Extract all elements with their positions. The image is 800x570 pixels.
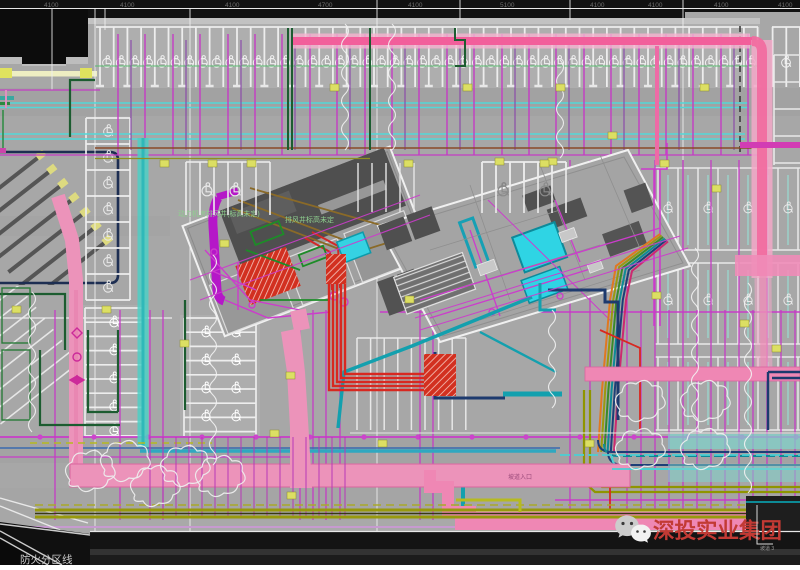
svg-text:坡道 3: 坡道 3 (760, 545, 774, 552)
svg-text:排风井标高未定: 排风井标高未定 (285, 215, 334, 224)
svg-text:坡道入口: 坡道入口 (508, 473, 532, 481)
svg-text:4100: 4100 (408, 2, 423, 9)
svg-text:4100: 4100 (778, 2, 793, 9)
svg-text:4100: 4100 (44, 2, 59, 9)
svg-text:4100: 4100 (120, 2, 135, 9)
svg-text:4100: 4100 (225, 2, 240, 9)
svg-text:动力机房排风井(标高未定): 动力机房排风井(标高未定) (178, 209, 260, 218)
svg-text:4100: 4100 (714, 2, 729, 9)
svg-text:5100: 5100 (500, 2, 515, 9)
svg-text:4100: 4100 (648, 2, 663, 9)
svg-text:深投实业集团: 深投实业集团 (653, 518, 782, 543)
svg-text:4100: 4100 (590, 2, 605, 9)
svg-text:4700: 4700 (318, 2, 333, 9)
svg-text:防火分区线: 防火分区线 (20, 553, 73, 565)
